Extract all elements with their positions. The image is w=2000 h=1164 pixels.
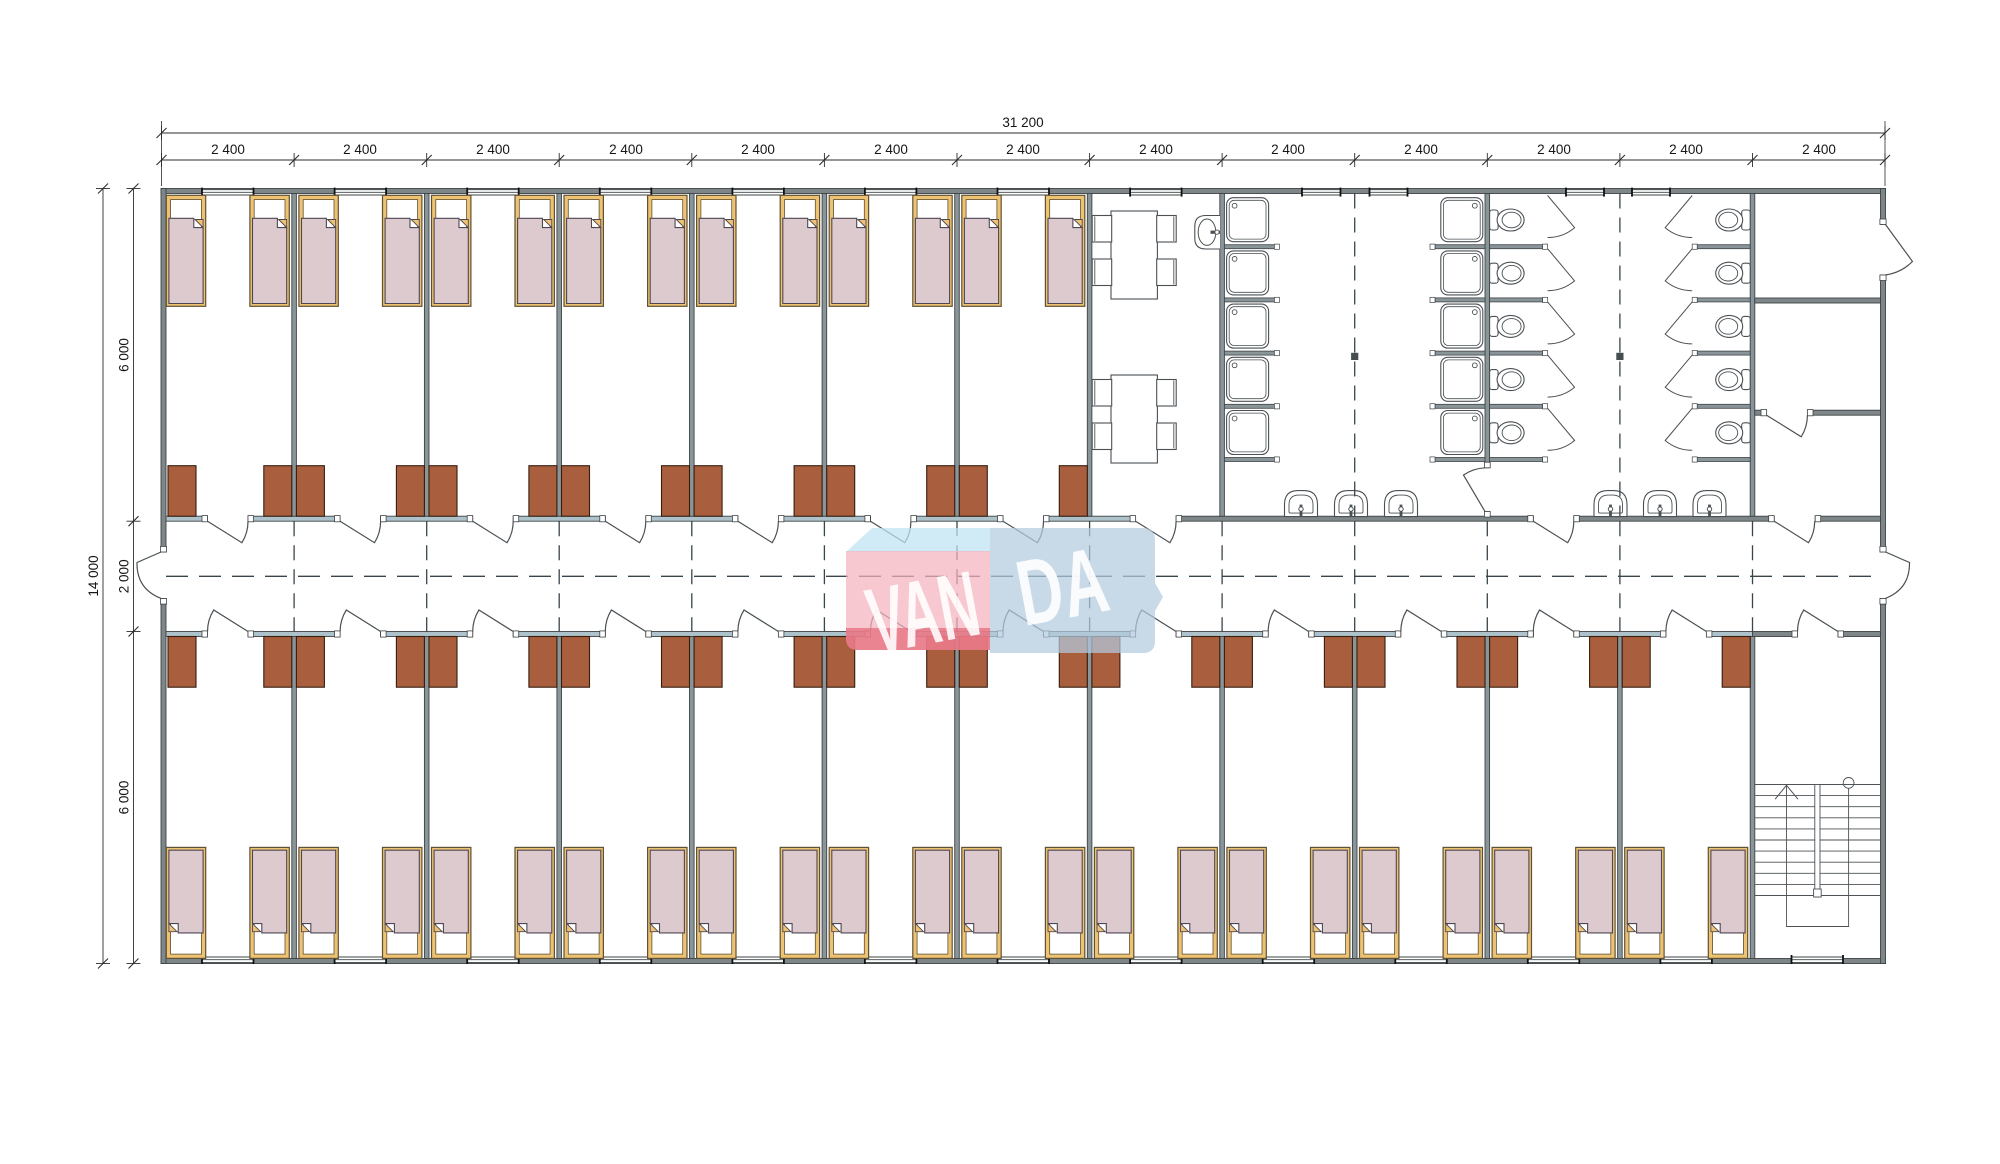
svg-text:2 400: 2 400 xyxy=(343,142,377,157)
svg-text:VAN: VAN xyxy=(859,551,987,673)
svg-text:2 400: 2 400 xyxy=(1669,142,1703,157)
svg-text:2 400: 2 400 xyxy=(1802,142,1836,157)
svg-text:14 000: 14 000 xyxy=(86,555,101,596)
svg-text:2 400: 2 400 xyxy=(1271,142,1305,157)
svg-text:31 200: 31 200 xyxy=(1002,115,1043,130)
svg-text:2 400: 2 400 xyxy=(874,142,908,157)
svg-text:2 400: 2 400 xyxy=(211,142,245,157)
svg-text:2 400: 2 400 xyxy=(1404,142,1438,157)
svg-text:2 400: 2 400 xyxy=(1537,142,1571,157)
svg-text:2 400: 2 400 xyxy=(609,142,643,157)
svg-text:6 000: 6 000 xyxy=(117,781,132,815)
svg-text:2 400: 2 400 xyxy=(1139,142,1173,157)
svg-text:2 400: 2 400 xyxy=(741,142,775,157)
svg-text:2 400: 2 400 xyxy=(476,142,510,157)
svg-text:DA: DA xyxy=(1009,527,1116,646)
svg-text:2 000: 2 000 xyxy=(117,559,132,593)
svg-text:2 400: 2 400 xyxy=(1006,142,1040,157)
svg-text:6 000: 6 000 xyxy=(117,338,132,372)
